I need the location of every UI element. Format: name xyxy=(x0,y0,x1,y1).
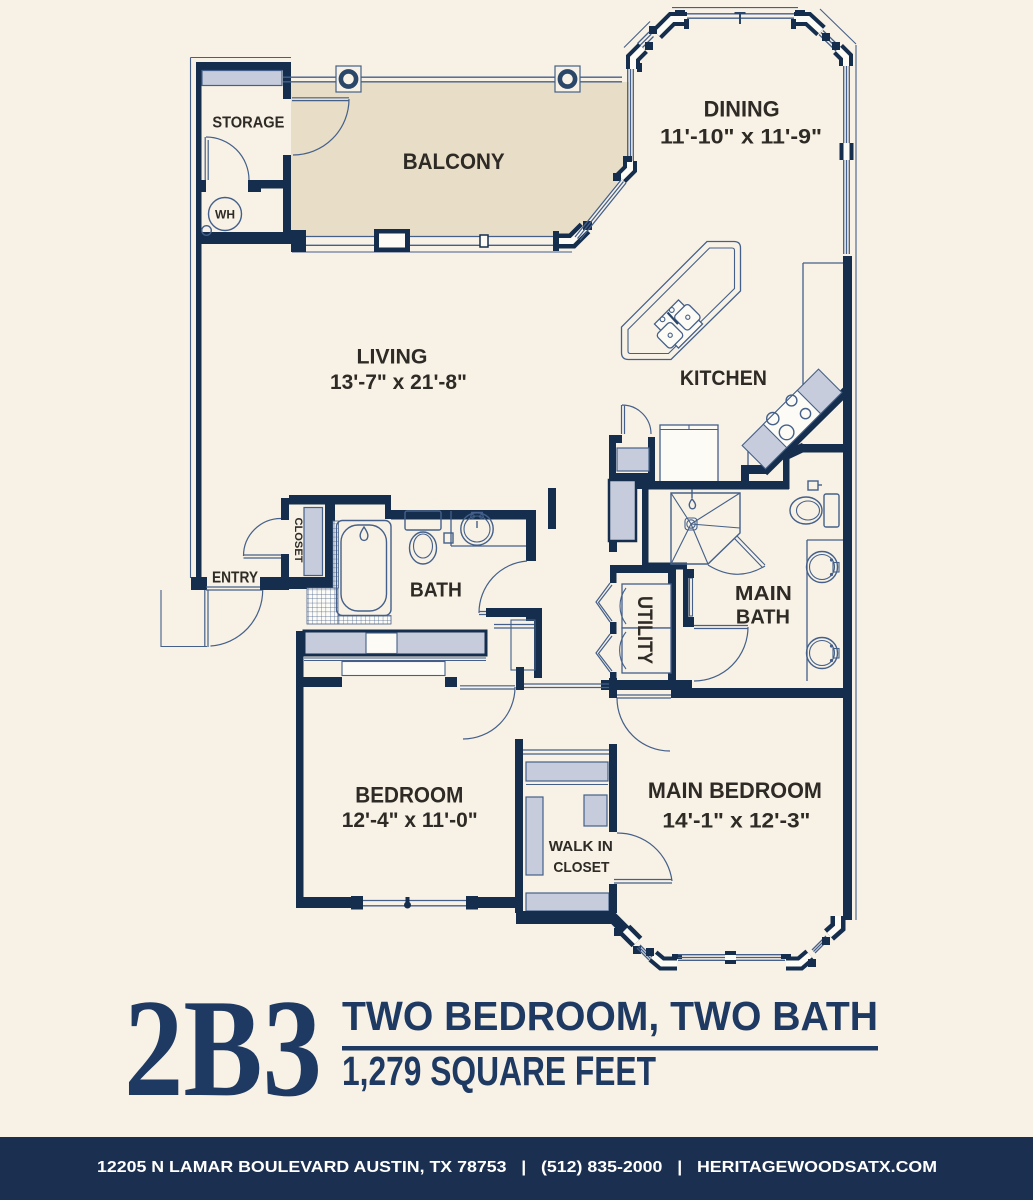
svg-text:UTILITY: UTILITY xyxy=(633,596,656,664)
svg-text:BALCONY: BALCONY xyxy=(403,149,505,174)
svg-text:MAIN: MAIN xyxy=(735,583,792,605)
svg-text:CLOSET: CLOSET xyxy=(553,859,609,876)
svg-text:WALK IN: WALK IN xyxy=(549,838,613,855)
svg-text:STORAGE: STORAGE xyxy=(212,115,284,132)
svg-text:LIVING: LIVING xyxy=(357,345,428,369)
svg-text:12'-4" x 11'-0": 12'-4" x 11'-0" xyxy=(342,808,478,832)
svg-text:14'-1" x 12'-3": 14'-1" x 12'-3" xyxy=(662,809,810,833)
svg-text:BATH: BATH xyxy=(410,579,462,602)
svg-text:BEDROOM: BEDROOM xyxy=(355,783,463,808)
svg-text:MAIN BEDROOM: MAIN BEDROOM xyxy=(648,778,822,803)
svg-text:WH: WH xyxy=(215,208,235,222)
svg-text:DINING: DINING xyxy=(704,97,780,122)
svg-text:TWO BEDROOM, TWO BATH: TWO BEDROOM, TWO BATH xyxy=(342,993,878,1039)
svg-text:BATH: BATH xyxy=(736,606,790,628)
svg-text:2B3: 2B3 xyxy=(124,971,322,1126)
svg-text:CLOSET: CLOSET xyxy=(292,518,304,563)
svg-text:12205 N LAMAR BOULEVARD AUSTIN: 12205 N LAMAR BOULEVARD AUSTIN, TX 78753… xyxy=(97,1159,937,1176)
svg-text:13'-7" x 21'-8": 13'-7" x 21'-8" xyxy=(330,370,467,394)
svg-text:ENTRY: ENTRY xyxy=(212,570,259,587)
svg-text:KITCHEN: KITCHEN xyxy=(680,366,767,390)
svg-text:1,279 SQUARE FEET: 1,279 SQUARE FEET xyxy=(342,1048,656,1094)
svg-text:11'-10" x 11'-9": 11'-10" x 11'-9" xyxy=(660,125,822,149)
